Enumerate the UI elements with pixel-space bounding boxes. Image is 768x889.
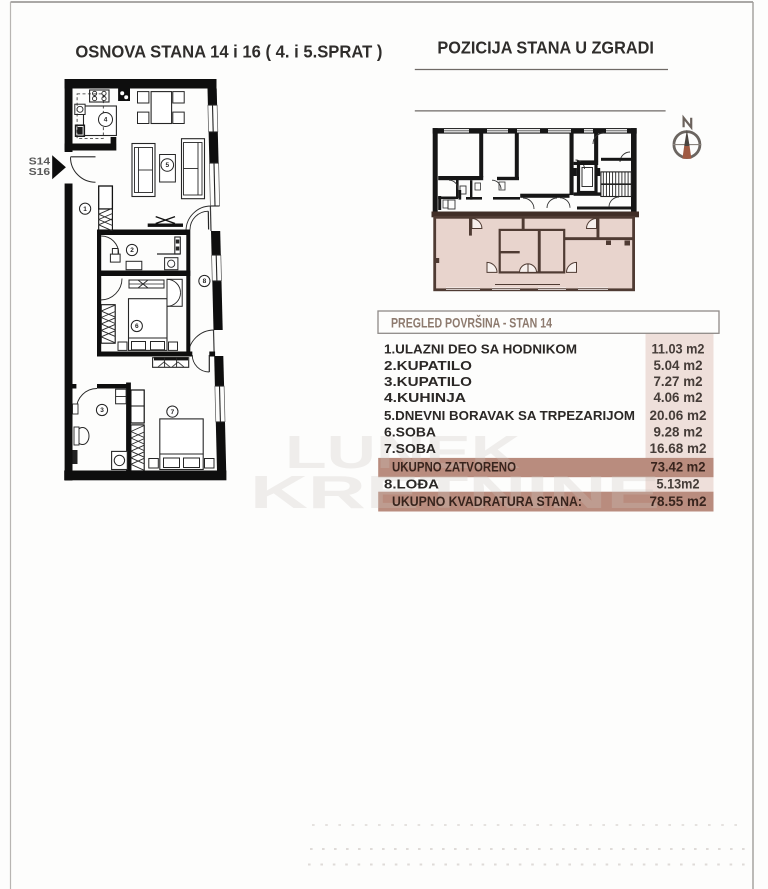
svg-text:5.13m2: 5.13m2 — [657, 477, 700, 492]
svg-text:9.28 m2: 9.28 m2 — [654, 425, 703, 440]
svg-text:16.68 m2: 16.68 m2 — [650, 441, 707, 456]
svg-text:UKUPNO KVADRATURA STANA:: UKUPNO KVADRATURA STANA: — [392, 494, 582, 509]
svg-text:6: 6 — [135, 323, 139, 330]
svg-text:4: 4 — [104, 117, 108, 124]
svg-text:PREGLED POVRŠINA - STAN 14: PREGLED POVRŠINA - STAN 14 — [391, 314, 552, 331]
svg-text:3: 3 — [100, 407, 104, 414]
svg-text:7: 7 — [171, 409, 175, 416]
svg-text:4.06 m2: 4.06 m2 — [654, 390, 703, 405]
svg-text:73.42 m2: 73.42 m2 — [651, 460, 706, 475]
svg-text:UKUPNO ZATVORENO: UKUPNO ZATVORENO — [392, 460, 516, 475]
svg-text:4.KUHINJA: 4.KUHINJA — [384, 390, 467, 405]
svg-text:78.55 m2: 78.55 m2 — [650, 494, 707, 509]
svg-text:POZICIJA STANA U ZGRADI: POZICIJA STANA U ZGRADI — [437, 38, 654, 58]
svg-text:5: 5 — [165, 162, 169, 169]
svg-text:2: 2 — [130, 247, 134, 254]
svg-text:OSNOVA STANA 14 i 16 ( 4. i 5: OSNOVA STANA 14 i 16 ( 4. i 5.SPRAT ) — [75, 41, 382, 61]
svg-text:2.KUPATILO: 2.KUPATILO — [384, 358, 472, 373]
svg-text:1: 1 — [83, 206, 87, 213]
svg-text:20.06 m2: 20.06 m2 — [650, 408, 707, 423]
svg-text:8.LOĐA: 8.LOĐA — [384, 477, 440, 492]
svg-text:7.SOBA: 7.SOBA — [384, 441, 437, 456]
svg-text:5.04 m2: 5.04 m2 — [654, 358, 703, 373]
svg-text:8: 8 — [203, 278, 207, 285]
svg-text:7.27 m2: 7.27 m2 — [654, 374, 703, 389]
svg-text:S16: S16 — [29, 166, 51, 178]
svg-text:5.DNEVNI BORAVAK SA TRPEZARIJO: 5.DNEVNI BORAVAK SA TRPEZARIJOM — [384, 408, 635, 423]
svg-text:1.ULAZNI DEO SA HODNIKOM: 1.ULAZNI DEO SA HODNIKOM — [384, 342, 577, 357]
svg-text:11.03 m2: 11.03 m2 — [652, 342, 705, 357]
svg-text:6.SOBA: 6.SOBA — [384, 425, 437, 440]
svg-text:3.KUPATILO: 3.KUPATILO — [384, 374, 472, 389]
